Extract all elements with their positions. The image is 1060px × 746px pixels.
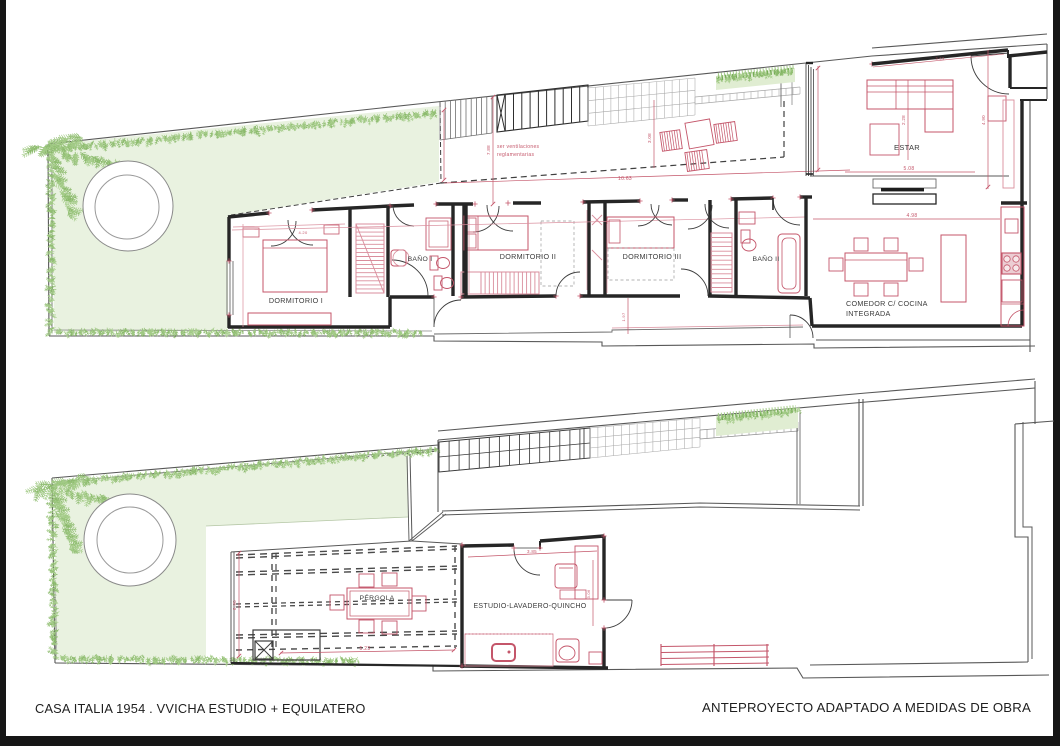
svg-text:7.88: 7.88 (486, 145, 491, 155)
svg-text:4.90: 4.90 (981, 115, 986, 125)
svg-text:5.08: 5.08 (904, 166, 915, 172)
svg-text:2.28: 2.28 (901, 115, 906, 125)
svg-text:4.98: 4.98 (907, 213, 918, 219)
svg-text:1.97: 1.97 (621, 312, 626, 321)
svg-text:DORMITORIO III: DORMITORIO III (623, 252, 682, 261)
svg-text:ANTEPROYECTO ADAPTADO A MEDIDA: ANTEPROYECTO ADAPTADO A MEDIDAS DE OBRA (702, 700, 1031, 715)
svg-text:ESTUDIO-LAVADERO-QUINCHO: ESTUDIO-LAVADERO-QUINCHO (473, 603, 586, 610)
svg-text:CASA ITALIA 1954 . VVICHA ESTU: CASA ITALIA 1954 . VVICHA ESTUDIO + EQUI… (35, 701, 366, 716)
svg-text:COMEDOR C/ COCINA: COMEDOR C/ COCINA (846, 299, 928, 308)
svg-text:4.20: 4.20 (299, 230, 308, 235)
svg-text:DORMITORIO II: DORMITORIO II (500, 252, 556, 261)
svg-text:PÉRGOLA: PÉRGOLA (360, 593, 395, 602)
svg-text:ESTAR: ESTAR (894, 143, 920, 152)
svg-text:3.06: 3.06 (586, 589, 591, 598)
svg-text:INTEGRADA: INTEGRADA (846, 309, 891, 318)
svg-text:3.85: 3.85 (527, 549, 537, 554)
svg-text:3.63: 3.63 (936, 56, 945, 61)
svg-text:reglamentarias: reglamentarias (497, 152, 534, 158)
svg-text:ser ventilaciones: ser ventilaciones (497, 144, 540, 150)
svg-text:BAÑO II: BAÑO II (752, 254, 779, 263)
svg-text:5.23: 5.23 (360, 646, 371, 652)
svg-text:BAÑO I: BAÑO I (408, 254, 433, 263)
svg-text:8.90: 8.90 (232, 600, 237, 610)
svg-text:3.08: 3.08 (647, 133, 652, 143)
svg-text:DORMITORIO I: DORMITORIO I (269, 296, 323, 305)
svg-text:10.63: 10.63 (618, 176, 632, 182)
